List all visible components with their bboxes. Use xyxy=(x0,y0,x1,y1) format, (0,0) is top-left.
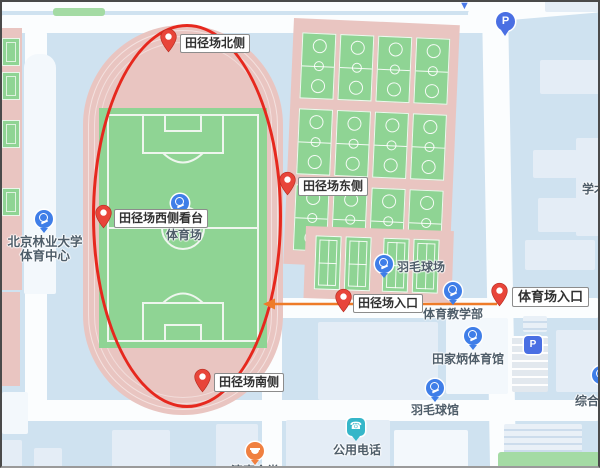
poi-badminton-hall-label[interactable]: 羽毛球馆 xyxy=(411,401,459,418)
building xyxy=(556,330,600,392)
map-pin[interactable] xyxy=(279,171,296,196)
left-pink-area xyxy=(0,292,20,386)
court-circle xyxy=(421,160,436,175)
map-pin[interactable] xyxy=(335,288,352,313)
court-circle xyxy=(388,42,403,57)
poi-tail xyxy=(380,273,388,278)
court-circle xyxy=(385,118,400,133)
parking-square-icon[interactable]: P xyxy=(524,336,542,354)
court-circle xyxy=(345,214,355,224)
building xyxy=(538,198,582,232)
court-circle xyxy=(311,79,326,94)
map-pin[interactable] xyxy=(194,368,211,393)
map-pin-label[interactable]: 田径场东侧 xyxy=(298,177,368,196)
poi-sports-center-label[interactable]: 体育中心 xyxy=(6,245,84,264)
basketball-court xyxy=(334,110,371,177)
badminton-court xyxy=(314,235,342,290)
court-circle xyxy=(309,114,324,129)
map-chevron-icon: ▼ xyxy=(459,0,470,12)
court-circle xyxy=(383,159,398,174)
map-pin-label[interactable]: 体育场入口 xyxy=(512,287,589,307)
court-circle xyxy=(350,40,365,55)
court-circle xyxy=(307,213,317,223)
court-circle xyxy=(386,140,396,150)
court-circle xyxy=(420,195,435,210)
poi-badminton-hall-icon[interactable] xyxy=(426,379,444,397)
poi-halal-canteen-label[interactable]: 清真食堂 xyxy=(231,462,279,468)
court-circle xyxy=(313,38,328,53)
court-circle xyxy=(425,84,440,99)
building xyxy=(2,392,28,434)
building xyxy=(0,440,22,468)
court-circle xyxy=(314,61,324,71)
map-pin-label[interactable]: 田径场南侧 xyxy=(214,373,284,392)
court-circle xyxy=(347,116,362,131)
basketball-court xyxy=(413,37,450,104)
building xyxy=(504,424,582,454)
parking-balloon-icon[interactable]: P xyxy=(496,12,515,31)
building xyxy=(34,448,62,468)
basketball-court xyxy=(372,112,409,179)
poi-badminton-courts-label[interactable]: 羽毛球场 xyxy=(397,258,445,275)
poi-edge-label: 综合 xyxy=(575,392,599,409)
building xyxy=(525,240,595,270)
poi-pe-teaching-dept-icon[interactable] xyxy=(444,282,462,300)
poi-public-phone-icon[interactable]: ☎ xyxy=(347,418,365,436)
court-circle xyxy=(426,43,441,58)
poi-edge-label: 学术 xyxy=(582,180,600,197)
basketball-court xyxy=(375,36,412,103)
map-pin-label[interactable]: 田径场北侧 xyxy=(180,34,250,53)
building xyxy=(318,322,438,400)
small-court xyxy=(2,188,20,216)
map-pin-label[interactable]: 田径场入口 xyxy=(353,294,423,313)
map-pin[interactable] xyxy=(160,28,177,53)
court-circle xyxy=(348,139,358,149)
road-right-vertical xyxy=(482,0,516,468)
map-world: 体育场羽毛球场体育教学部田家炳体育馆羽毛球馆☎公用电话清真食堂北京林业大学体育中… xyxy=(0,0,600,468)
court-circle xyxy=(307,155,322,170)
court-circle xyxy=(383,216,393,226)
basketball-court xyxy=(300,32,337,99)
small-court xyxy=(2,72,20,100)
poi-public-phone-label[interactable]: 公用电话 xyxy=(333,441,381,458)
poi-pe-teaching-dept-label[interactable]: 体育教学部 xyxy=(423,305,483,322)
badminton-court xyxy=(344,236,372,291)
court-circle xyxy=(387,83,402,98)
court-circle xyxy=(352,63,362,73)
court-circle xyxy=(428,66,438,76)
court-circle xyxy=(423,119,438,134)
map-pin[interactable] xyxy=(95,204,112,229)
map-canvas[interactable]: 体育场羽毛球场体育教学部田家炳体育馆羽毛球馆☎公用电话清真食堂北京林业大学体育中… xyxy=(0,0,600,468)
building xyxy=(112,430,170,468)
building xyxy=(540,60,600,94)
poi-tianjiabing-gym-icon[interactable] xyxy=(464,327,482,345)
poi-stadium-label[interactable]: 体育场 xyxy=(166,226,202,243)
court-midline xyxy=(319,262,337,264)
map-pin-label[interactable]: 田径场西侧看台 xyxy=(114,209,208,228)
court-circle xyxy=(390,64,400,74)
court-circle xyxy=(345,157,360,172)
poi-tianjiabing-gym-label[interactable]: 田家炳体育馆 xyxy=(432,350,504,367)
hedge-strip xyxy=(53,8,105,16)
building-phone xyxy=(394,430,468,468)
road-bottom-horizontal xyxy=(0,400,600,421)
basketball-court xyxy=(337,34,374,101)
small-court xyxy=(2,38,20,66)
court-circle xyxy=(310,137,320,147)
poi-sports-center-icon[interactable] xyxy=(35,210,53,228)
building-windows xyxy=(523,316,547,332)
building xyxy=(545,0,600,12)
court-circle xyxy=(421,218,431,228)
basketball-court xyxy=(296,108,333,175)
basketball-court xyxy=(410,113,447,180)
small-court xyxy=(2,120,20,148)
grass-patch xyxy=(498,452,600,468)
building xyxy=(533,150,577,178)
poi-badminton-courts-icon[interactable] xyxy=(375,255,393,273)
poi-halal-canteen-icon[interactable] xyxy=(246,442,264,460)
court-midline xyxy=(349,264,367,266)
court-circle xyxy=(424,142,434,152)
map-pin[interactable] xyxy=(491,282,508,307)
court-circle xyxy=(382,194,397,209)
court-circle xyxy=(349,81,364,96)
